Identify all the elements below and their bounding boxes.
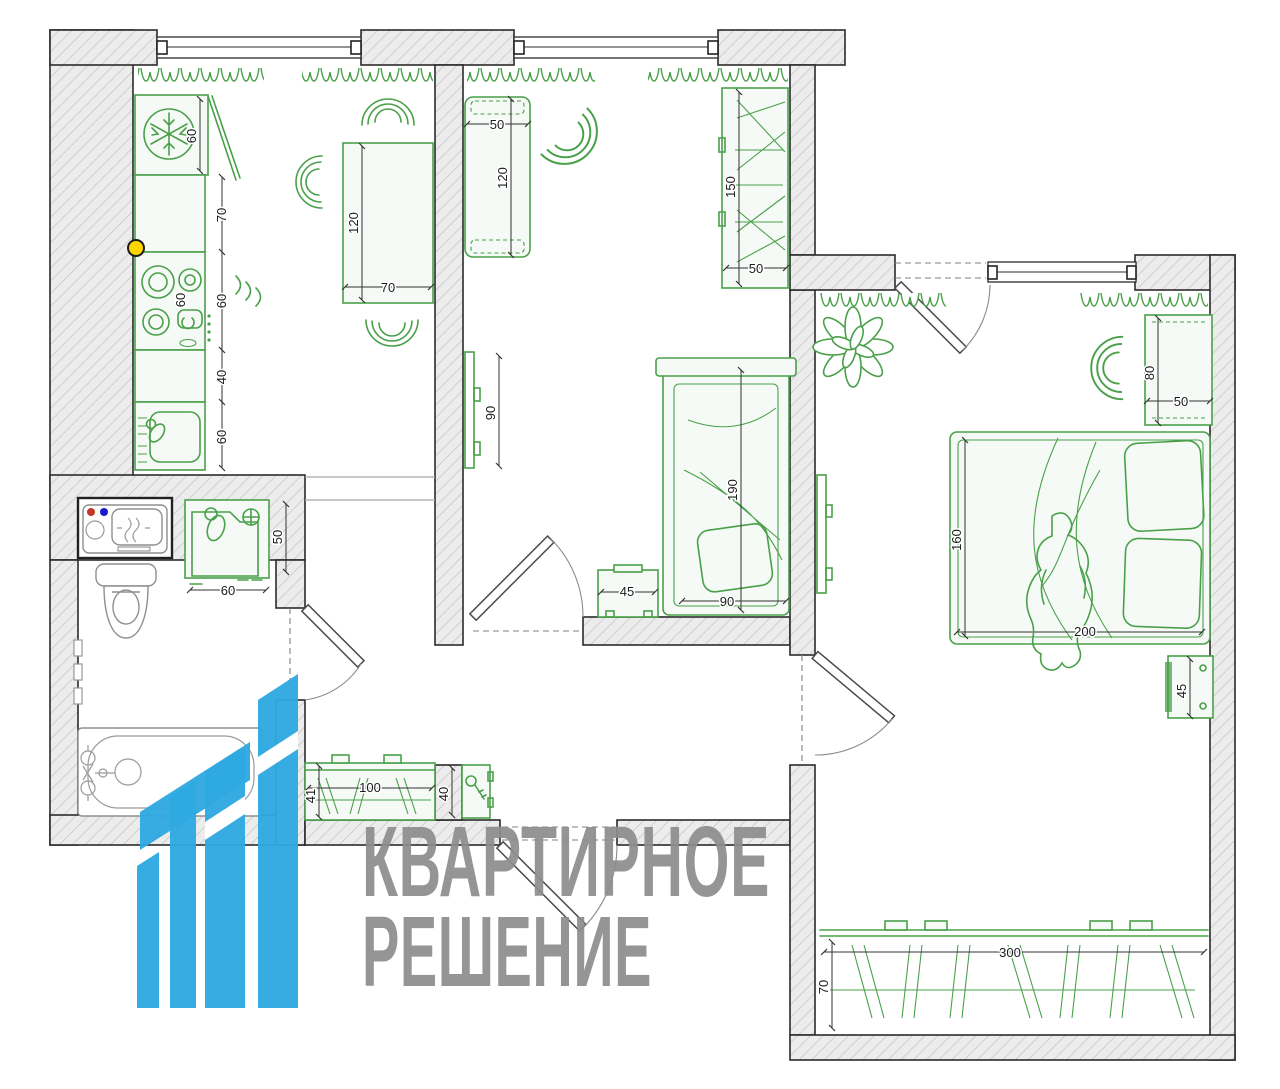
dim-label: 40	[214, 370, 229, 384]
dim-label: 120	[346, 212, 361, 234]
washing-machine	[78, 498, 172, 558]
wall-bath-right-top	[276, 560, 305, 608]
kitchen-counter	[135, 175, 205, 252]
room2-door	[470, 536, 583, 631]
dim-label: 60	[184, 129, 199, 143]
curtain-room2-left	[467, 67, 595, 89]
room2-window	[514, 37, 718, 58]
wall-top-pier	[361, 30, 514, 65]
dim-label: 60	[214, 294, 229, 308]
chair-icon	[366, 320, 418, 346]
side-table	[1165, 656, 1213, 718]
wall-bedroom-top-1	[790, 255, 895, 290]
bedroom-window	[988, 262, 1136, 282]
watermark: КВАРТИРНОЕ РЕШЕНИЕ	[137, 674, 770, 1008]
floor-plan-page: 60 70 60 60 40 60 120 70 50 60 50 120 15…	[0, 0, 1280, 1089]
wall-top-2	[718, 30, 845, 65]
dim-label: 50	[490, 117, 504, 132]
cold-water-marker	[100, 508, 108, 516]
dim-label: 70	[381, 280, 395, 295]
dim-label: 120	[495, 167, 510, 189]
wall-kitchen-room2	[435, 65, 463, 645]
room2	[465, 88, 796, 617]
dim-label: 80	[1142, 366, 1157, 380]
wall-bedroom-bottom	[790, 1035, 1235, 1060]
curtain-kitchen-right	[302, 67, 433, 89]
wall-room2-right	[790, 65, 815, 255]
dim-label: 150	[723, 176, 738, 198]
gas-point-marker	[128, 240, 144, 256]
curtain-kitchen-left	[138, 67, 264, 89]
desk-chair-icon	[1091, 337, 1122, 399]
wall-bedroom-left-top	[790, 290, 815, 655]
dim-label: 50	[749, 261, 763, 276]
dim-label: 60	[221, 583, 235, 598]
bedroom	[813, 307, 1213, 1028]
hot-water-marker	[87, 508, 95, 516]
dim-label: 90	[720, 594, 734, 609]
bathroom-door	[290, 605, 364, 700]
floor-plan: 60 70 60 60 40 60 120 70 50 60 50 120 15…	[0, 0, 1280, 1089]
dim-label: 41	[303, 789, 318, 803]
dim-label: 200	[1074, 624, 1096, 639]
kitchen-cabinet	[135, 350, 205, 402]
tv-bedroom	[817, 475, 832, 593]
armchair-icon	[541, 108, 610, 177]
curtain-bedroom-left	[820, 292, 946, 314]
wall-bedroom-left-bottom	[790, 765, 815, 1035]
wall-room2-bottom	[583, 617, 790, 645]
dim-label: 60	[214, 430, 229, 444]
dim-label: 190	[725, 479, 740, 501]
dim-label: 70	[214, 208, 229, 222]
watermark-line2: РЕШЕНИЕ	[362, 896, 652, 1008]
dim-label: 70	[816, 980, 831, 994]
wall-top-1	[50, 30, 157, 65]
wardrobe-bedroom	[820, 921, 1208, 1028]
bedroom-door	[802, 652, 894, 765]
chair-icon	[296, 156, 322, 208]
curtain-room2-right	[648, 67, 788, 89]
dim-label: 45	[620, 584, 634, 599]
dim-label: 300	[999, 945, 1021, 960]
dim-label: 100	[359, 780, 381, 795]
kitchen-passage	[305, 477, 435, 500]
dim-label: 160	[949, 529, 964, 551]
towel-radiator	[74, 640, 82, 704]
heat-icon	[236, 276, 261, 306]
plant-icon	[813, 307, 893, 387]
dim-label: 40	[436, 787, 451, 801]
kitchen-sink	[135, 402, 205, 470]
curtain-bedroom-right	[1080, 292, 1208, 314]
dim-label: 50	[270, 530, 285, 544]
valve-icon	[243, 509, 259, 525]
balcony-door-opening	[895, 263, 986, 278]
dim-label: 45	[1174, 684, 1189, 698]
chair-icon	[362, 99, 414, 125]
dim-label: 90	[483, 406, 498, 420]
wall-left-kitchen	[50, 30, 133, 500]
dim-label: 60	[173, 293, 188, 307]
kitchen-window	[157, 37, 361, 58]
toilet	[96, 564, 156, 638]
dim-label: 50	[1174, 394, 1188, 409]
